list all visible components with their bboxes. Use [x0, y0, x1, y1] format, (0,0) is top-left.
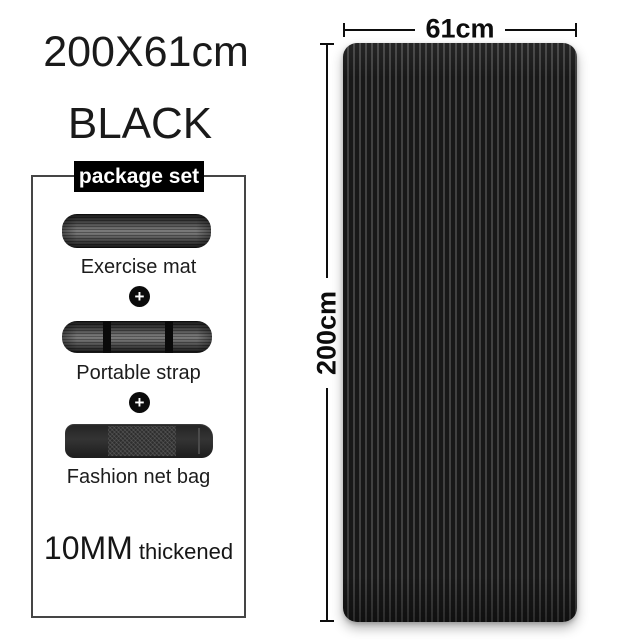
- size-title: 200X61cm: [28, 28, 264, 76]
- item-label-net-bag: Fashion net bag: [31, 466, 246, 489]
- dimension-line-segment: [344, 29, 415, 31]
- exercise-mat-image: [62, 214, 211, 248]
- thickness-value: 10MM: [44, 530, 133, 566]
- item-label-exercise-mat: Exercise mat: [31, 256, 246, 279]
- height-dimension-line: 200cm: [319, 43, 335, 622]
- net-bag-endcap: [198, 428, 210, 454]
- yoga-mat-image: [343, 43, 577, 622]
- height-dimension-label: 200cm: [312, 284, 343, 380]
- item-label-portable-strap: Portable strap: [31, 362, 246, 385]
- plus-icon: +: [129, 392, 150, 413]
- plus-icon: +: [129, 286, 150, 307]
- product-image: 200X61cm BLACK package set Exercise mat …: [0, 0, 640, 640]
- portable-strap-image: [62, 321, 212, 353]
- strap-band: [165, 321, 173, 353]
- thickness-suffix: thickened: [133, 539, 233, 564]
- strap-band: [103, 321, 111, 353]
- dimension-tick: [575, 23, 577, 37]
- width-dimension-label: 61cm: [421, 13, 498, 44]
- net-bag-image: [65, 424, 213, 458]
- dimension-tick: [320, 620, 334, 622]
- dimension-line-segment: [326, 388, 328, 622]
- package-set-label: package set: [74, 161, 204, 192]
- net-bag-mesh-panel: [108, 426, 176, 456]
- color-name-title: BLACK: [25, 100, 255, 148]
- width-dimension-line: 61cm: [343, 22, 577, 38]
- dimension-line-segment: [505, 29, 576, 31]
- thickness-note: 10MM thickened: [31, 530, 246, 567]
- dimension-line-segment: [326, 44, 328, 278]
